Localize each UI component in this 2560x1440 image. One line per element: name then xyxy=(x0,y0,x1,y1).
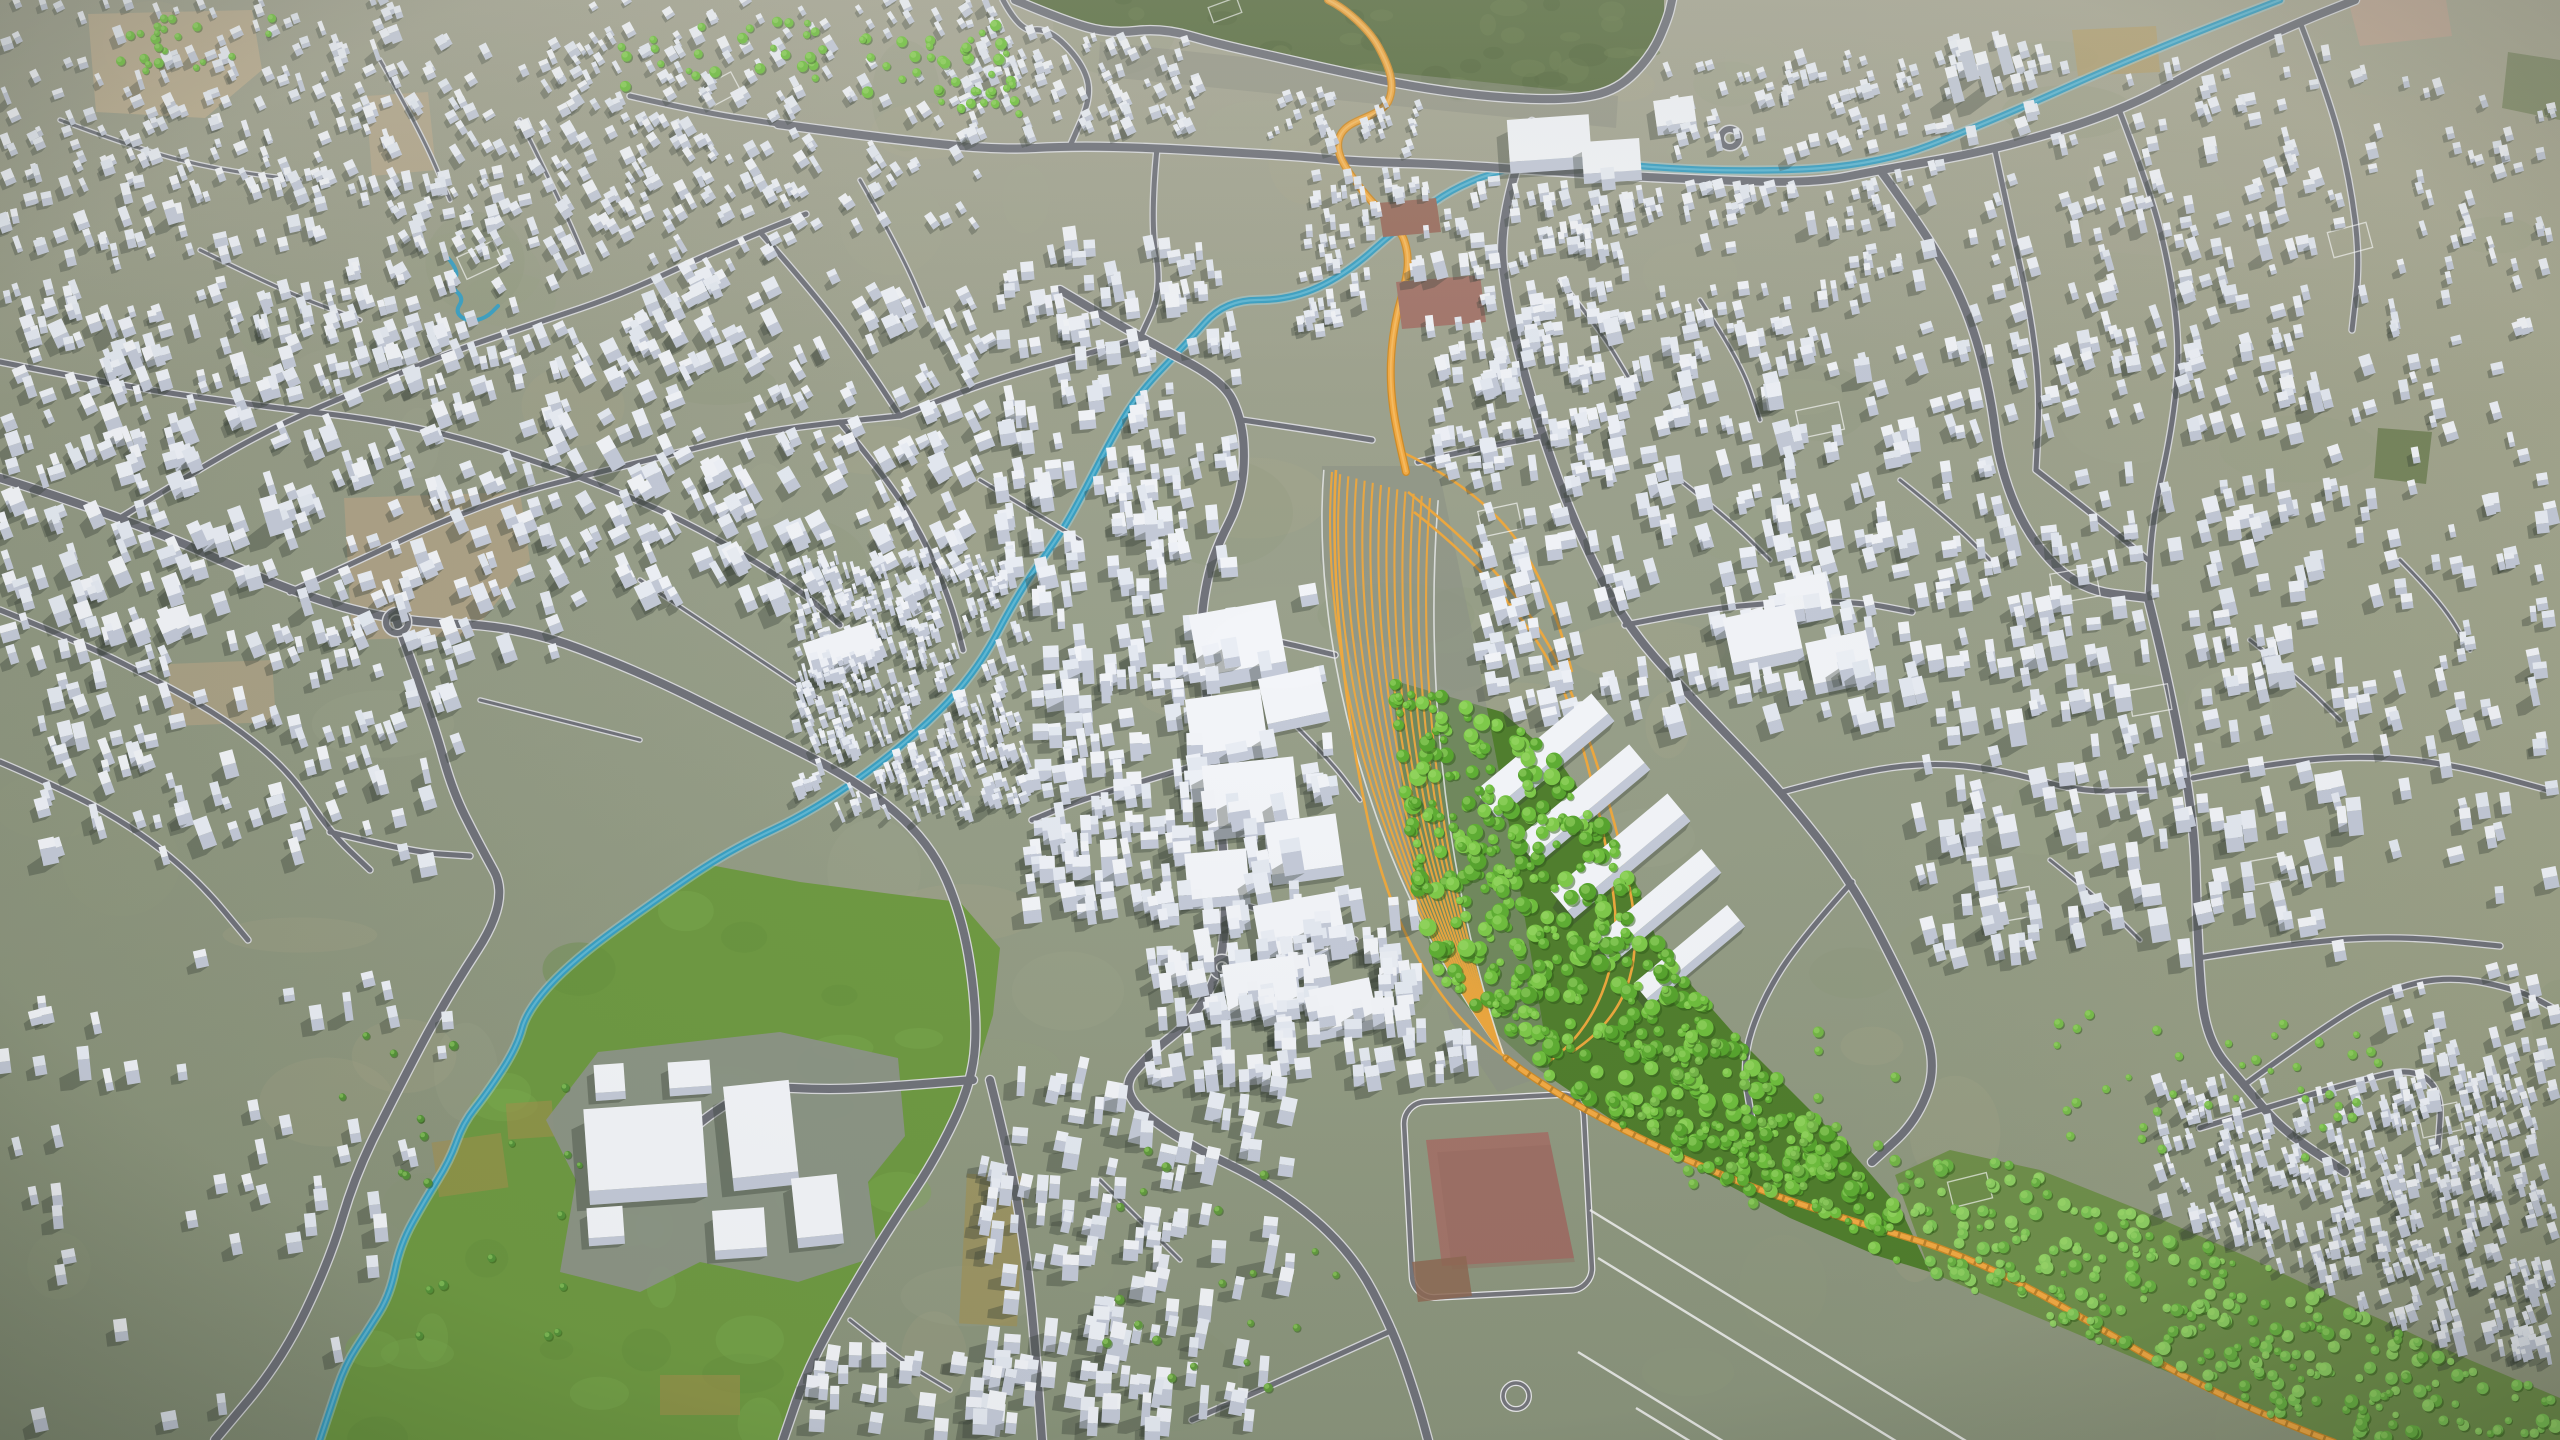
city-render-viewport xyxy=(0,0,2560,1440)
vignette-overlay xyxy=(0,0,2560,1440)
city-3d-aerial-map xyxy=(0,0,2560,1440)
atmosphere-layer xyxy=(0,0,2560,1440)
